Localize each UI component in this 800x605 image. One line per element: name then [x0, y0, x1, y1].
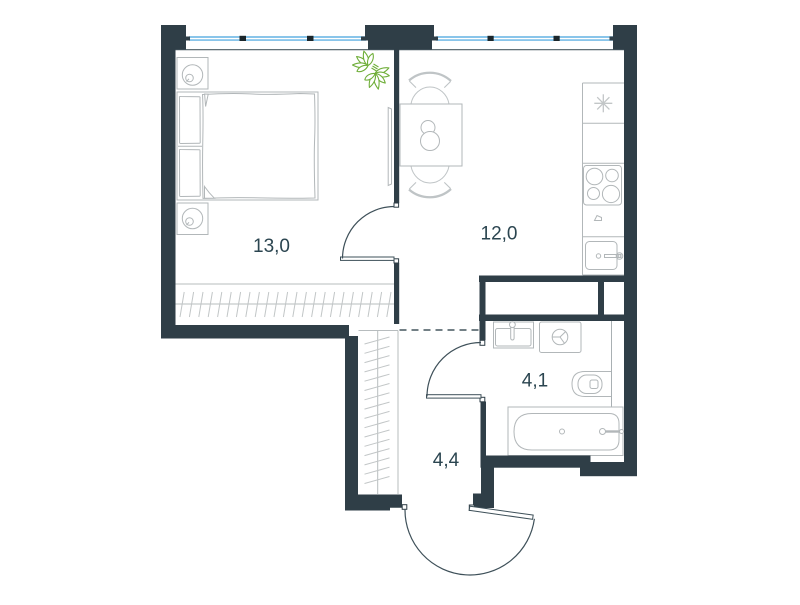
svg-text:13,0: 13,0 [253, 236, 290, 257]
svg-text:4,4: 4,4 [433, 450, 460, 471]
svg-text:12,0: 12,0 [481, 224, 518, 245]
svg-text:4,1: 4,1 [522, 371, 548, 392]
